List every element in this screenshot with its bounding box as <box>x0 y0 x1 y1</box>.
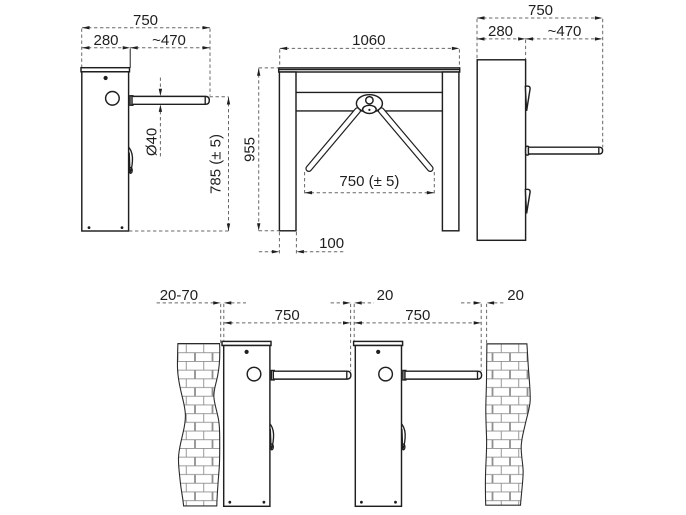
svg-text:280: 280 <box>93 32 118 49</box>
svg-text:Ø40: Ø40 <box>144 128 161 156</box>
svg-text:~470: ~470 <box>152 32 186 49</box>
svg-text:750: 750 <box>133 12 158 29</box>
svg-text:750: 750 <box>405 307 430 324</box>
svg-text:750 (± 5): 750 (± 5) <box>339 173 399 190</box>
svg-text:20-70: 20-70 <box>160 287 198 304</box>
svg-text:750: 750 <box>528 2 553 19</box>
svg-text:20: 20 <box>507 287 524 304</box>
svg-text:280: 280 <box>488 23 513 40</box>
svg-text:750: 750 <box>275 307 300 324</box>
svg-text:785 (± 5): 785 (± 5) <box>208 134 225 194</box>
svg-text:1060: 1060 <box>352 32 385 49</box>
svg-text:100: 100 <box>319 235 344 252</box>
svg-text:~470: ~470 <box>548 23 582 40</box>
svg-text:20: 20 <box>377 287 394 304</box>
svg-text:955: 955 <box>241 137 258 162</box>
